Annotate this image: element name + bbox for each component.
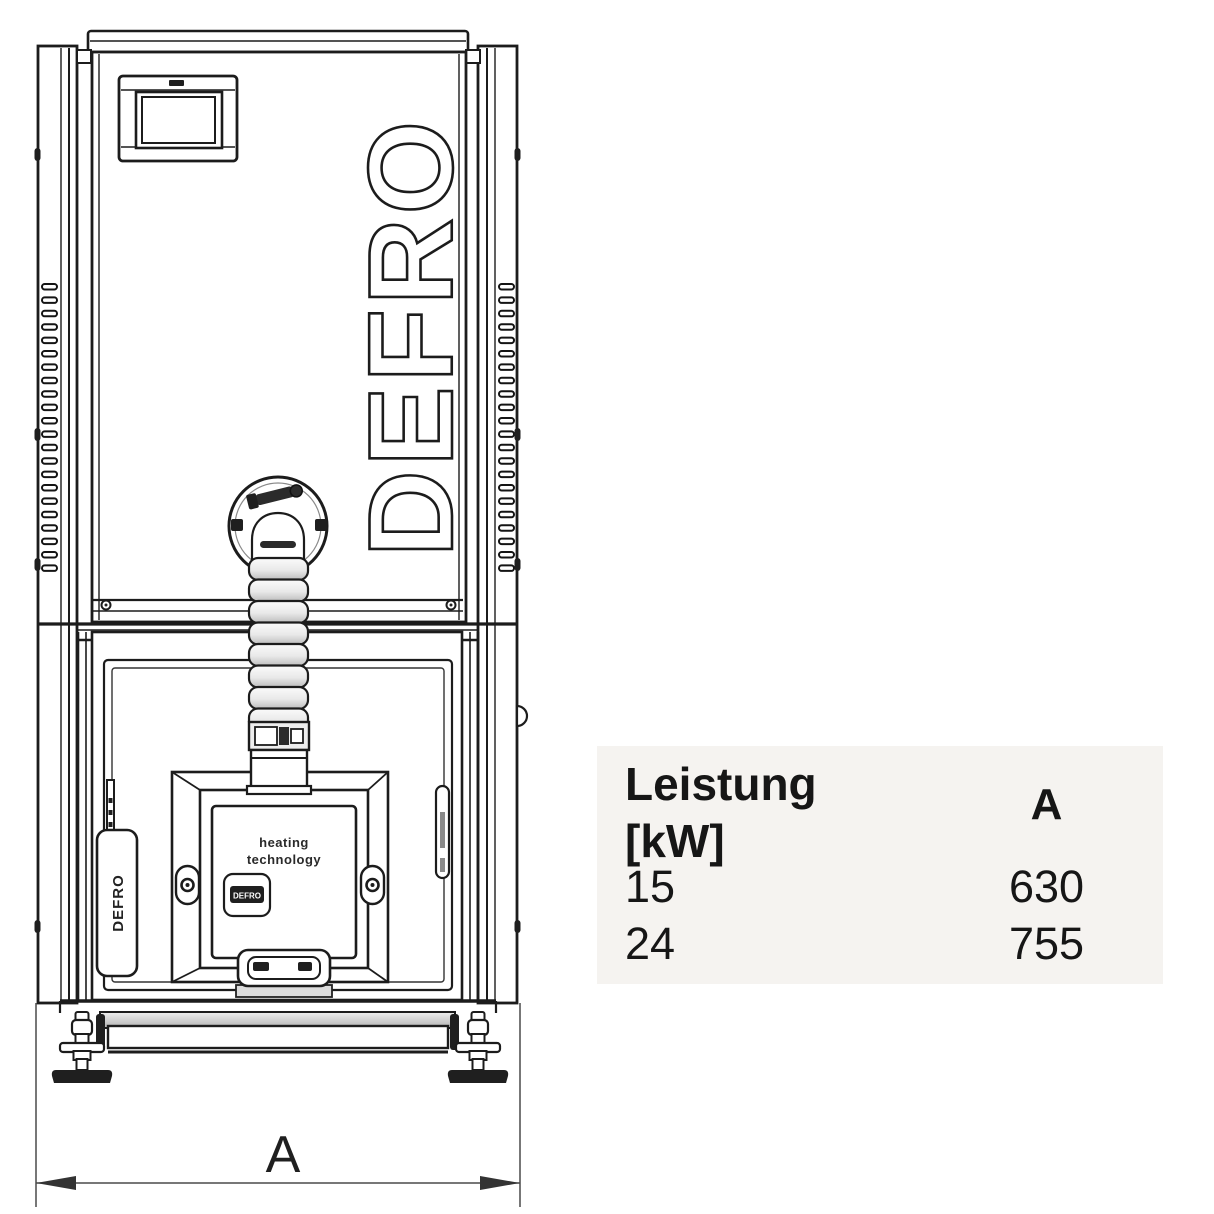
dimension-label-a: A	[266, 1126, 301, 1184]
table-header-dim-a: A	[930, 746, 1163, 858]
division-screw-right	[447, 601, 456, 610]
level-gauge	[436, 786, 449, 878]
base-frame	[52, 1001, 508, 1083]
page: DEFRO DEFRO	[0, 0, 1214, 1214]
door-text-line1: heating	[259, 835, 309, 850]
panel-mark	[169, 80, 184, 86]
door-text-line2: technology	[247, 852, 322, 867]
dim-arrow-right	[480, 1176, 520, 1190]
side-knob	[517, 706, 527, 726]
display-screen	[142, 97, 215, 143]
boiler-technical-drawing: DEFRO DEFRO	[0, 0, 1214, 1214]
pipe-clamp	[249, 722, 309, 750]
table-cell-power-15: 15	[597, 858, 930, 915]
table-cell-power-24: 24	[597, 915, 930, 972]
thermometer-label: DEFRO	[110, 874, 127, 932]
flexible-feed-pipe	[247, 558, 311, 794]
right-side-panel	[478, 46, 527, 1003]
header-power-line1: Leistung	[625, 756, 930, 813]
door-handle	[238, 950, 330, 986]
flange-bolt-left	[231, 519, 243, 531]
table-cell-a-630: 630	[930, 858, 1163, 915]
flange-slot	[260, 541, 296, 548]
badge-label: DEFRO	[233, 892, 261, 901]
table-cell-a-755: 755	[930, 915, 1163, 972]
flange-bolt-right	[315, 519, 327, 531]
dim-arrow-left	[36, 1176, 76, 1190]
control-panel	[119, 76, 237, 161]
spec-table: Leistung [kW] A 15 630 24 755	[597, 746, 1163, 984]
division-screw-left	[102, 601, 111, 610]
left-side-panel	[35, 46, 78, 1003]
defro-logo-text: DEFRO	[344, 117, 478, 557]
burner-door: heating technology DEFRO	[172, 772, 388, 997]
door-hinge-right	[361, 866, 384, 904]
door-hinge-left	[176, 866, 199, 904]
table-header-power: Leistung [kW]	[597, 746, 930, 858]
door-panel	[212, 806, 356, 958]
